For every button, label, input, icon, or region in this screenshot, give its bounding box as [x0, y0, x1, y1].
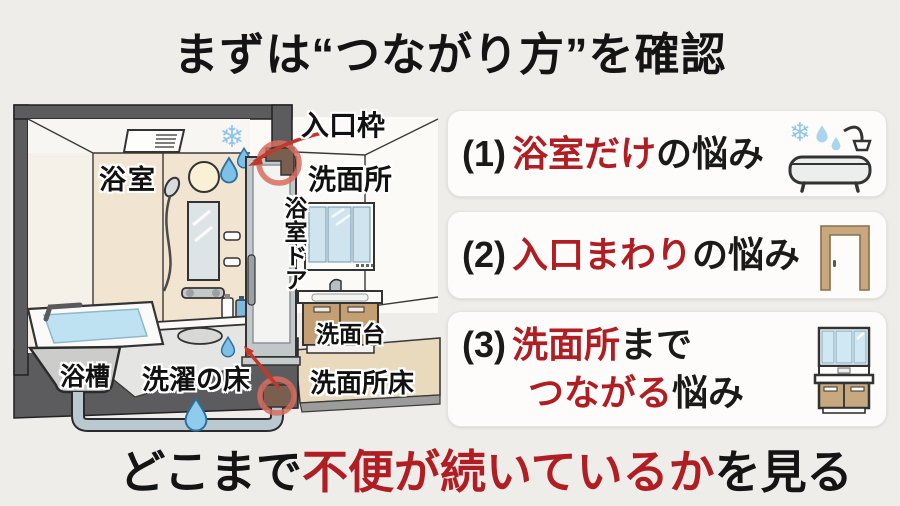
item-text: 悩み [672, 372, 744, 413]
item-highlight: つながる [528, 372, 672, 413]
item-number: (2) [462, 234, 506, 275]
label-entrance-frame: 入口枠 [301, 104, 385, 144]
item-number: (1) [462, 133, 506, 174]
footer-black-1: どこまで [119, 446, 302, 498]
item-highlight: 洗面所 [512, 324, 620, 365]
checklist-item-3: (3)洗面所まで つながる悩み [447, 311, 887, 427]
footer-highlight: 不便が続いているか [302, 446, 715, 498]
bathtub-icon: ❄ [784, 115, 876, 193]
svg-text:❄: ❄ [789, 117, 811, 147]
item-text: の悩み [656, 133, 764, 174]
item-highlight: 入口まわり [512, 234, 692, 275]
item-text: の悩み [692, 234, 800, 275]
label-bathroom: 浴室 [99, 158, 157, 197]
infographic: まずは“つながり方”を確認 [0, 0, 900, 506]
label-bathtub: 浴槽 [60, 357, 110, 393]
bottle-icon [222, 298, 233, 318]
snowflake-icon: ❄ [219, 121, 244, 154]
vanity-icon [812, 324, 876, 414]
bathroom-mirror [188, 202, 219, 280]
label-bathroom-door: 浴室ドア [277, 196, 311, 292]
wash-basin [178, 328, 222, 344]
item-number: (3) [462, 324, 506, 365]
label-washroom: 洗面所 [308, 158, 392, 198]
label-vanity: 洗面台 [316, 315, 385, 349]
checklist-item-1: (1)浴室だけの悩み ❄ [447, 110, 887, 197]
item-text: まで [620, 324, 692, 365]
bathroom-diagram: ❄ [0, 95, 450, 440]
label-washing-floor: 洗濯の床 [142, 358, 250, 397]
footer-message: どこまで不便が続いているかを見る [0, 436, 900, 502]
footer-black-2: を見る [715, 446, 853, 498]
wall-shelf [224, 232, 240, 240]
checklist-item-2: (2)入口まわりの悩み [447, 211, 887, 299]
label-washroom-floor: 洗面所床 [310, 363, 414, 400]
page-title: まずは“つながり方”を確認 [0, 18, 900, 83]
item-highlight: 浴室だけ [512, 133, 656, 174]
ceiling-fan-icon [124, 130, 184, 152]
door-frame-icon [814, 218, 876, 292]
bathroom-light-icon [189, 162, 219, 192]
wall-shelf [224, 258, 240, 266]
